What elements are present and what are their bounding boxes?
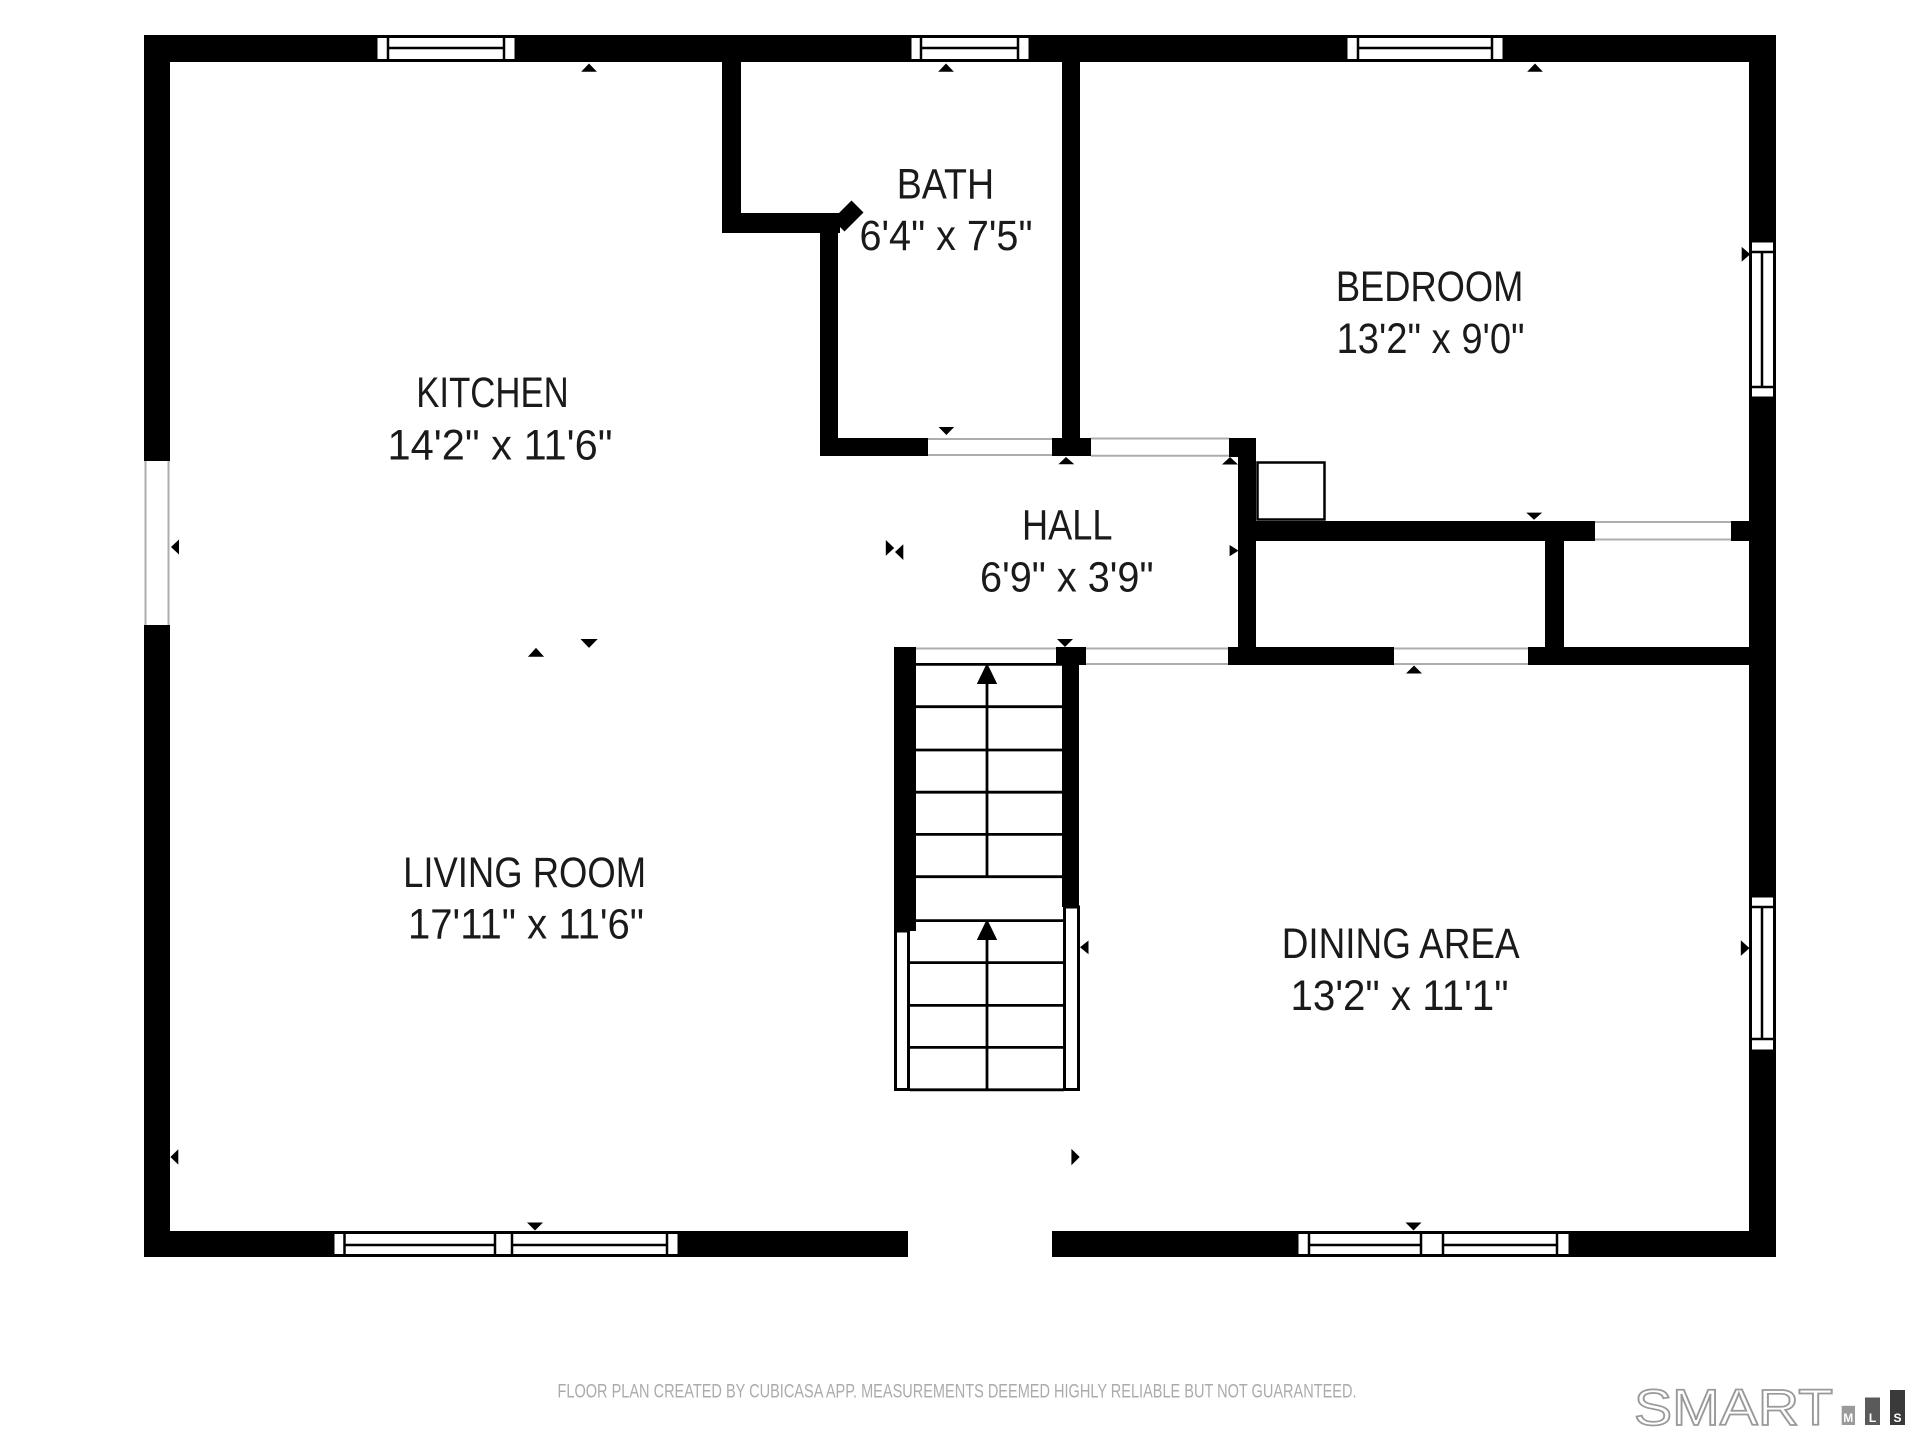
svg-text:S: S [1893,1411,1901,1425]
svg-text:L: L [1869,1411,1876,1425]
svg-text:BATH: BATH [897,162,994,209]
svg-text:13'2" x 9'0": 13'2" x 9'0" [1337,316,1525,363]
svg-text:14'2" x 11'6": 14'2" x 11'6" [388,423,613,470]
svg-text:LIVING ROOM: LIVING ROOM [403,850,646,897]
svg-text:M: M [1843,1411,1853,1425]
svg-text:HALL: HALL [1022,502,1113,549]
svg-text:13'2" x 11'1": 13'2" x 11'1" [1291,973,1509,1020]
svg-text:KITCHEN: KITCHEN [416,370,569,417]
svg-text:6'4" x 7'5": 6'4" x 7'5" [860,213,1033,260]
svg-text:DINING AREA: DINING AREA [1282,921,1521,968]
svg-text:FLOOR PLAN CREATED BY CUBICASA: FLOOR PLAN CREATED BY CUBICASA APP. MEAS… [558,1381,1357,1403]
svg-text:SMART: SMART [1634,1379,1833,1436]
svg-text:BEDROOM: BEDROOM [1336,264,1524,311]
svg-text:6'9" x 3'9": 6'9" x 3'9" [980,554,1154,601]
svg-text:17'11" x 11'6": 17'11" x 11'6" [408,902,644,949]
